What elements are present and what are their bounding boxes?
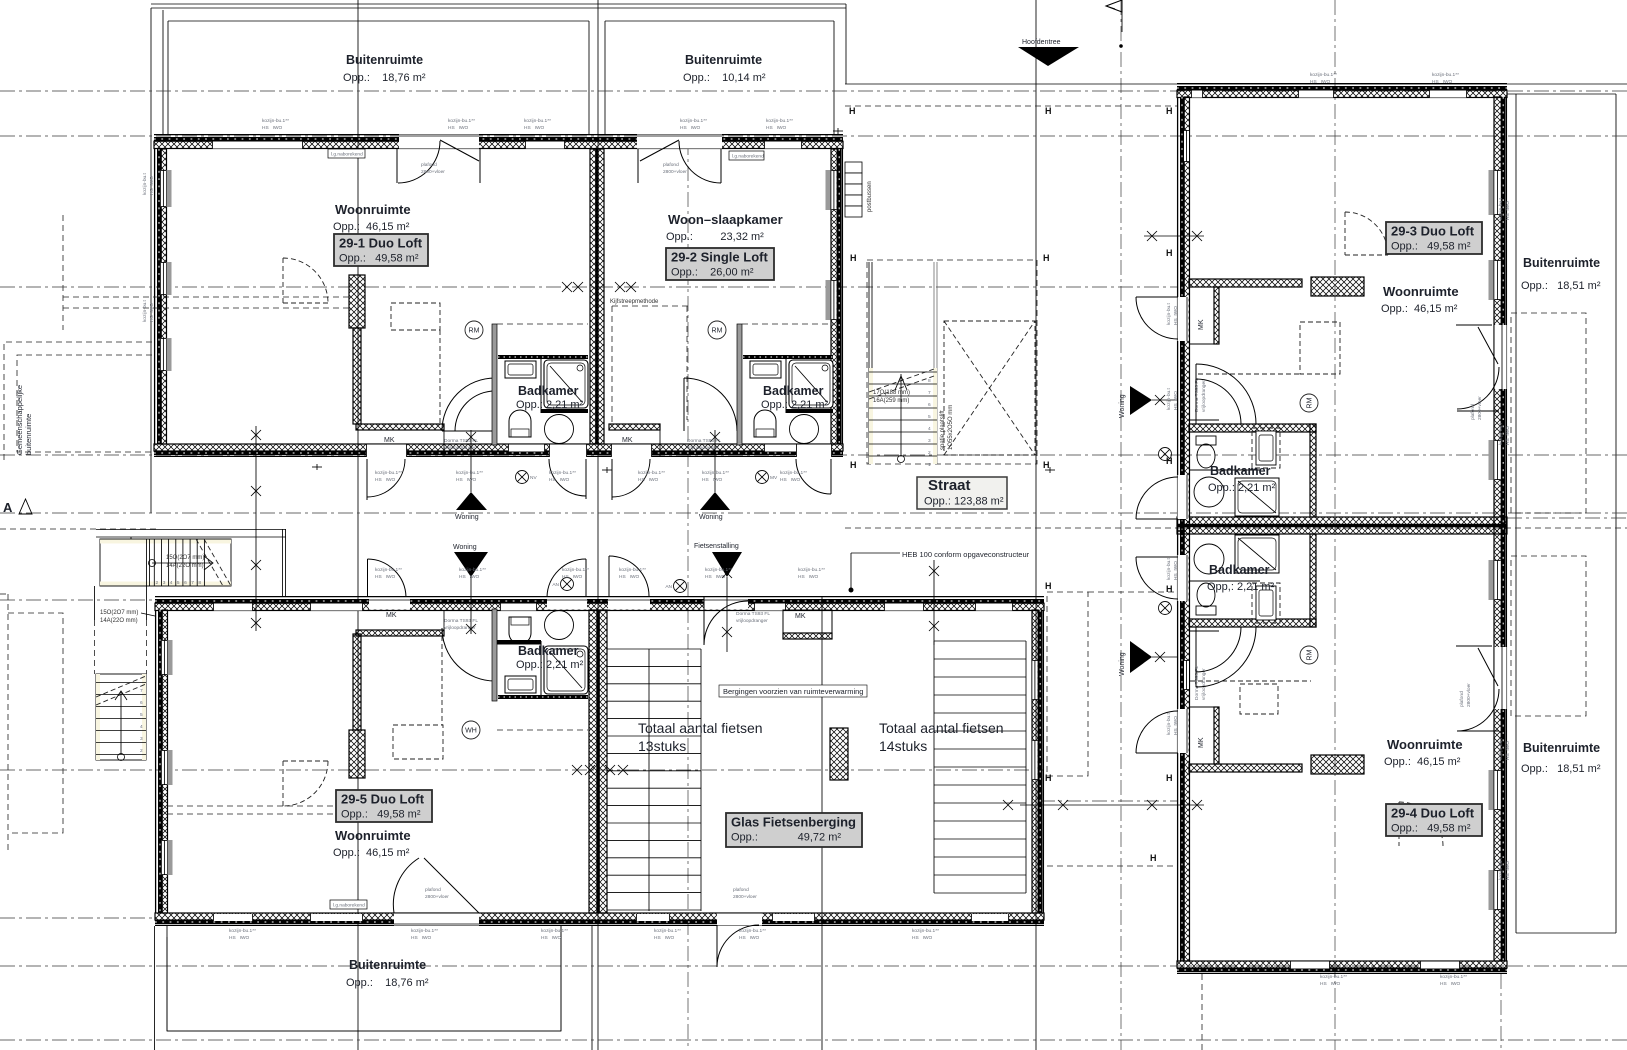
svg-text:HS IWO: HS IWO [562, 574, 583, 580]
svg-text:5: 5 [140, 712, 143, 718]
svg-text:2800+vloer: 2800+vloer [663, 169, 687, 175]
svg-text:Totaal aantal fietsen: Totaal aantal fietsen [879, 720, 1004, 736]
svg-text:HS IWO: HS IWO [766, 125, 787, 131]
svg-text:kozijn-bu.1**: kozijn-bu.1** [229, 928, 256, 934]
svg-text:plafond: plafond [1470, 404, 1476, 420]
svg-text:Dorma TS93 FL: Dorma TS93 FL [687, 438, 721, 444]
svg-text:l.g.naborekend: l.g.naborekend [732, 154, 764, 160]
svg-text:buitenruimte: buitenruimte [24, 414, 33, 455]
svg-text:Opp.: 46,15 m²: Opp.: 46,15 m² [1384, 756, 1461, 768]
svg-text:Dorma TS93 FL: Dorma TS93 FL [444, 618, 478, 624]
svg-text:Woning: Woning [455, 514, 479, 521]
svg-text:3: 3 [928, 438, 931, 444]
svg-text:15O(2O7 mm): 15O(2O7 mm) [166, 555, 204, 561]
svg-text:kozijn-bu.t: kozijn-bu.t [1166, 557, 1172, 580]
svg-text:AN: AN [665, 584, 672, 590]
svg-text:14stuks: 14stuks [879, 738, 927, 754]
svg-text:Woon–slaapkamer: Woon–slaapkamer [668, 212, 783, 227]
svg-text:kozijn-bu.t: kozijn-bu.t [1498, 737, 1504, 760]
svg-text:Badkamer: Badkamer [518, 384, 579, 398]
svg-text:7: 7 [928, 390, 931, 396]
svg-text:plafond: plafond [663, 162, 679, 168]
svg-text:H: H [1045, 106, 1052, 116]
svg-text:HS IWO: HS IWO [375, 477, 396, 483]
svg-text:15O(2O7 mm): 15O(2O7 mm) [100, 610, 138, 616]
svg-text:Woonruimte: Woonruimte [1387, 737, 1463, 752]
svg-text:7: 7 [140, 688, 143, 694]
svg-text:H: H [1166, 106, 1173, 116]
svg-text:HS IWO: HS IWO [1310, 79, 1331, 85]
svg-text:MK: MK [622, 437, 633, 444]
svg-text:H: H [850, 253, 857, 263]
svg-text:Opp.: 2,21 m²: Opp.: 2,21 m² [516, 659, 584, 671]
svg-text:3: 3 [140, 736, 143, 742]
svg-text:WH: WH [465, 728, 477, 735]
svg-text:kozijn-bu.1**: kozijn-bu.1** [1310, 72, 1337, 78]
svg-text:kozijn-bu.t: kozijn-bu.t [1166, 387, 1172, 410]
svg-text:1O55x2O5O mm: 1O55x2O5O mm [948, 405, 954, 450]
svg-text:Buitenruimte: Buitenruimte [349, 958, 426, 972]
svg-text:Kijfstreepmethode: Kijfstreepmethode [610, 299, 659, 305]
svg-text:Opp,: 2,21 m²: Opp,: 2,21 m² [1207, 581, 1275, 593]
svg-text:HS IWO: HS IWO [459, 574, 480, 580]
svg-text:MK: MK [1198, 319, 1205, 330]
svg-text:MK: MK [1198, 737, 1205, 748]
svg-text:kozijn-bu.1**: kozijn-bu.1** [1432, 72, 1459, 78]
svg-text:2800+vloer: 2800+vloer [1477, 396, 1483, 420]
svg-text:MK: MK [384, 437, 395, 444]
svg-text:2800+vloer: 2800+vloer [1466, 683, 1472, 707]
svg-text:Totaal aantal fietsen: Totaal aantal fietsen [638, 720, 763, 736]
svg-text:7: 7 [191, 580, 194, 586]
svg-text:H: H [1166, 584, 1173, 594]
svg-text:HS IWO: HS IWO [1173, 561, 1179, 580]
svg-text:Woonruimte: Woonruimte [1383, 284, 1459, 299]
svg-text:Badkamer: Badkamer [1209, 563, 1270, 577]
svg-text:Bergingen voorzien van ruimtev: Bergingen voorzien van ruimteverwarming [723, 687, 863, 696]
svg-text:6: 6 [140, 700, 143, 706]
svg-text:HS IWO: HS IWO [549, 477, 570, 483]
svg-text:4: 4 [170, 580, 173, 586]
svg-text:Woning: Woning [453, 544, 477, 551]
svg-text:l.g.naborekend: l.g.naborekend [331, 152, 363, 158]
svg-text:HS IWO: HS IWO [541, 935, 562, 941]
svg-text:Opp.: 49,58 m²: Opp.: 49,58 m² [1391, 823, 1471, 835]
svg-text:kozijn-bu.1**: kozijn-bu.1** [1440, 974, 1467, 980]
svg-text:l.g.naborekend: l.g.naborekend [333, 903, 365, 909]
svg-text:2800+vloer: 2800+vloer [421, 169, 445, 175]
svg-text:HS IWO: HS IWO [448, 125, 469, 131]
svg-text:29-1 Duo Loft: 29-1 Duo Loft [339, 236, 423, 251]
svg-text:HS IWO: HS IWO [705, 574, 726, 580]
svg-text:kozijn-bu.1**: kozijn-bu.1** [541, 928, 568, 934]
svg-text:6: 6 [184, 580, 187, 586]
svg-text:NV: NV [530, 475, 537, 481]
svg-text:2: 2 [156, 580, 159, 586]
svg-text:kozijn-bu.1**: kozijn-bu.1** [459, 567, 486, 573]
svg-text:HS IWO: HS IWO [524, 125, 545, 131]
svg-text:HS IWO: HS IWO [739, 935, 760, 941]
svg-text:kozijn-bu.t: kozijn-bu.t [1498, 197, 1504, 220]
svg-text:Buitenruimte: Buitenruimte [1523, 256, 1600, 270]
svg-text:HS IWO: HS IWO [456, 477, 477, 483]
svg-text:HS IWO: HS IWO [1505, 201, 1511, 220]
svg-text:RM: RM [712, 328, 723, 335]
svg-text:Woning: Woning [1119, 394, 1126, 418]
svg-text:Buitenruimte: Buitenruimte [685, 53, 762, 67]
svg-text:Opp.: 49,58 m²: Opp.: 49,58 m² [341, 809, 421, 821]
svg-text:5: 5 [928, 414, 931, 420]
svg-text:plafond: plafond [733, 887, 749, 893]
svg-text:Hoofdentree: Hoofdentree [1022, 39, 1061, 46]
svg-text:HS IWO: HS IWO [1173, 716, 1179, 735]
svg-text:H: H [1166, 248, 1173, 258]
svg-text:Dorma TS93 FL: Dorma TS93 FL [1194, 666, 1200, 700]
svg-text:8: 8 [928, 378, 931, 384]
svg-text:H: H [1166, 773, 1173, 783]
svg-text:AN: AN [552, 582, 559, 588]
svg-text:H: H [1166, 456, 1173, 466]
svg-text:kozijn-bu.1**: kozijn-bu.1** [375, 470, 402, 476]
svg-text:kozijn-bu.1**: kozijn-bu.1** [562, 567, 589, 573]
svg-text:kozijn-bu.1**: kozijn-bu.1** [638, 470, 665, 476]
svg-text:HS IWO: HS IWO [680, 125, 701, 131]
svg-text:A: A [3, 500, 13, 515]
svg-text:plafond: plafond [425, 887, 441, 893]
svg-text:8: 8 [198, 580, 201, 586]
svg-text:Opp.: 23,32 m²: Opp.: 23,32 m² [666, 231, 764, 243]
svg-text:Opp.: 46,15 m²: Opp.: 46,15 m² [333, 221, 410, 233]
svg-text:3: 3 [163, 580, 166, 586]
svg-text:HS IWO: HS IWO [375, 574, 396, 580]
svg-text:HS IWO: HS IWO [912, 935, 933, 941]
svg-text:kozijn-bu.1**: kozijn-bu.1** [654, 928, 681, 934]
svg-text:Badkamer: Badkamer [518, 644, 579, 658]
svg-text:kozijn-bu.t: kozijn-bu.t [142, 172, 148, 195]
svg-text:RM: RM [1307, 649, 1314, 660]
svg-text:Opp.: 18,76 m²: Opp.: 18,76 m² [343, 72, 426, 84]
svg-text:kozijn-bu.1**: kozijn-bu.1** [456, 470, 483, 476]
svg-text:kozijn-bu.1**: kozijn-bu.1** [549, 470, 576, 476]
svg-text:Opp.: 10,14 m²: Opp.: 10,14 m² [683, 72, 766, 84]
svg-text:Straat: Straat [928, 477, 971, 494]
svg-text:HS IWO: HS IWO [780, 477, 801, 483]
svg-text:Fietsenstalling: Fietsenstalling [694, 543, 739, 550]
svg-text:14A(22O mm): 14A(22O mm) [166, 563, 204, 569]
svg-text:Buitenruimte: Buitenruimte [1523, 741, 1600, 755]
svg-text:plafond: plafond [421, 162, 437, 168]
svg-text:14A(22O mm): 14A(22O mm) [100, 618, 138, 624]
svg-text:HS IWO: HS IWO [1173, 306, 1179, 325]
svg-text:MV: MV [770, 475, 778, 481]
svg-text:5: 5 [177, 580, 180, 586]
svg-text:HS IWO: HS IWO [1173, 391, 1179, 410]
svg-text:kozijn-bu.1**: kozijn-bu.1** [680, 118, 707, 124]
svg-text:Opp.: 26,00 m²: Opp.: 26,00 m² [671, 267, 754, 279]
svg-text:29-2 Single Loft: 29-2 Single Loft [671, 250, 768, 265]
svg-text:HS IWO: HS IWO [1505, 741, 1511, 760]
svg-text:HS IWO: HS IWO [262, 125, 283, 131]
svg-text:HS IWO: HS IWO [149, 176, 155, 195]
svg-text:kozijn-bu.1**: kozijn-bu.1** [411, 928, 438, 934]
svg-text:HS IWO: HS IWO [798, 574, 819, 580]
svg-text:H: H [849, 106, 856, 116]
svg-text:Opp.: 18,51 m²: Opp.: 18,51 m² [1521, 763, 1601, 775]
svg-text:Dorma TS93 FL: Dorma TS93 FL [444, 438, 478, 444]
svg-text:HS IWO: HS IWO [229, 935, 250, 941]
svg-text:Opp.: 123,88 m²: Opp.: 123,88 m² [924, 496, 1004, 508]
svg-text:kozijn-bu.1**: kozijn-bu.1** [702, 470, 729, 476]
svg-text:29-3 Duo Loft: 29-3 Duo Loft [1391, 224, 1475, 239]
svg-text:2800+vloer: 2800+vloer [733, 894, 757, 900]
svg-text:Opp.: 49,58 m²: Opp.: 49,58 m² [1391, 241, 1471, 253]
svg-text:kozijn-bu.1**: kozijn-bu.1** [375, 567, 402, 573]
svg-text:kozijn-bu.1**: kozijn-bu.1** [1320, 974, 1347, 980]
svg-text:Opp.: 46,15 m²: Opp.: 46,15 m² [333, 847, 410, 859]
svg-text:Glas Fietsenberging: Glas Fietsenberging [731, 815, 856, 830]
svg-text:kozijn-bu.t: kozijn-bu.t [1166, 712, 1172, 735]
svg-text:H: H [1150, 853, 1157, 863]
svg-text:17O(188 mm): 17O(188 mm) [873, 390, 910, 396]
svg-text:vrijloopdranger: vrijloopdranger [1201, 668, 1207, 700]
svg-text:HS IWO: HS IWO [1505, 426, 1511, 445]
svg-text:kozijn-bu.1**: kozijn-bu.1** [524, 118, 551, 124]
svg-text:kozijn-bu.1**: kozijn-bu.1** [766, 118, 793, 124]
svg-text:Opp.: 49,58 m²: Opp.: 49,58 m² [339, 253, 419, 265]
svg-text:2: 2 [140, 748, 143, 754]
svg-text:H: H [1043, 460, 1050, 470]
svg-text:H: H [1045, 773, 1052, 783]
svg-text:HS IWO: HS IWO [149, 303, 155, 322]
svg-text:1: 1 [928, 462, 931, 468]
svg-text:Opp.: 2,21 m²: Opp.: 2,21 m² [761, 399, 829, 411]
svg-text:H: H [1045, 581, 1052, 591]
svg-text:Buitenruimte: Buitenruimte [346, 53, 423, 67]
svg-text:HS IWO: HS IWO [1432, 79, 1453, 85]
svg-text:Woning: Woning [1119, 652, 1126, 676]
svg-text:2800+vloer: 2800+vloer [425, 894, 449, 900]
svg-text:Badkamer: Badkamer [763, 384, 824, 398]
svg-text:spatie plaatslift: spatie plaatslift [940, 410, 946, 450]
svg-text:RM: RM [469, 328, 480, 335]
svg-text:Opp.: 2,21 m²: Opp.: 2,21 m² [1208, 482, 1276, 494]
svg-text:kozijn-bu.1**: kozijn-bu.1** [448, 118, 475, 124]
svg-text:HS IWO: HS IWO [1320, 981, 1341, 987]
svg-text:kozijn-bu.1**: kozijn-bu.1** [780, 470, 807, 476]
svg-text:postbussen: postbussen [867, 181, 873, 212]
svg-text:29-4 Duo Loft: 29-4 Duo Loft [1391, 806, 1475, 821]
svg-text:MK: MK [386, 612, 397, 619]
svg-text:Woonruimte: Woonruimte [335, 828, 411, 843]
svg-text:4: 4 [928, 426, 931, 432]
svg-text:Woonruimte: Woonruimte [335, 202, 411, 217]
svg-text:HEB 100 conform opgaveconstruc: HEB 100 conform opgaveconstructeur [902, 550, 1030, 559]
svg-text:H: H [850, 460, 857, 470]
svg-text:vrijloopdranger: vrijloopdranger [1201, 380, 1207, 412]
svg-text:Opp.: 46,15 m²: Opp.: 46,15 m² [1381, 303, 1458, 315]
svg-text:13stuks: 13stuks [638, 738, 686, 754]
svg-text:4: 4 [140, 724, 143, 730]
svg-text:vrijloopdranger: vrijloopdranger [736, 618, 768, 624]
svg-text:HS IWO: HS IWO [411, 935, 432, 941]
svg-text:MK: MK [795, 613, 806, 620]
svg-text:RM: RM [1307, 397, 1314, 408]
svg-text:plafond: plafond [1459, 691, 1465, 707]
svg-text:Opp.: 18,51 m²: Opp.: 18,51 m² [1521, 280, 1601, 292]
svg-text:kozijn-bu.1**: kozijn-bu.1** [262, 118, 289, 124]
svg-text:HS IWO: HS IWO [1440, 981, 1461, 987]
svg-text:Opp.: 2,21 m²: Opp.: 2,21 m² [516, 399, 584, 411]
svg-text:kozijn-bu.1**: kozijn-bu.1** [705, 567, 732, 573]
svg-text:kozijn-bu.t: kozijn-bu.t [1166, 302, 1172, 325]
svg-text:6: 6 [928, 402, 931, 408]
svg-text:kozijn-bu.t: kozijn-bu.t [1498, 857, 1504, 880]
svg-text:HS IWO: HS IWO [702, 477, 723, 483]
svg-text:kozijn-bu.1**: kozijn-bu.1** [739, 928, 766, 934]
svg-text:HS IWO: HS IWO [619, 574, 640, 580]
svg-text:HS IWO: HS IWO [1505, 861, 1511, 880]
svg-text:H: H [1043, 253, 1050, 263]
svg-text:HS IWO: HS IWO [638, 477, 659, 483]
svg-text:Dorma TS93 FL: Dorma TS93 FL [736, 611, 770, 617]
svg-text:HS IWO: HS IWO [654, 935, 675, 941]
svg-text:Gemeenschappelijke: Gemeenschappelijke [15, 385, 24, 455]
svg-text:Woning: Woning [699, 514, 723, 521]
svg-text:kozijn-bu.1**: kozijn-bu.1** [798, 567, 825, 573]
svg-text:kozijn-bu.t: kozijn-bu.t [1498, 422, 1504, 445]
svg-text:kozijn-bu.1**: kozijn-bu.1** [619, 567, 646, 573]
svg-text:vrijloopdranger: vrijloopdranger [687, 445, 719, 451]
svg-text:29-5 Duo Loft: 29-5 Duo Loft [341, 792, 425, 807]
svg-text:kozijn-bu.t: kozijn-bu.t [142, 299, 148, 322]
svg-text:kozijn-bu.1**: kozijn-bu.1** [912, 928, 939, 934]
svg-text:2: 2 [928, 450, 931, 456]
svg-text:Dorma TS93 FL: Dorma TS93 FL [1194, 378, 1200, 412]
svg-text:Opp.: 18,76 m²: Opp.: 18,76 m² [346, 977, 429, 989]
svg-text:16A(259 mm): 16A(259 mm) [873, 398, 909, 404]
svg-text:Badkamer: Badkamer [1210, 464, 1271, 478]
svg-text:Opp.: 49,72 m²: Opp.: 49,72 m² [731, 832, 841, 844]
